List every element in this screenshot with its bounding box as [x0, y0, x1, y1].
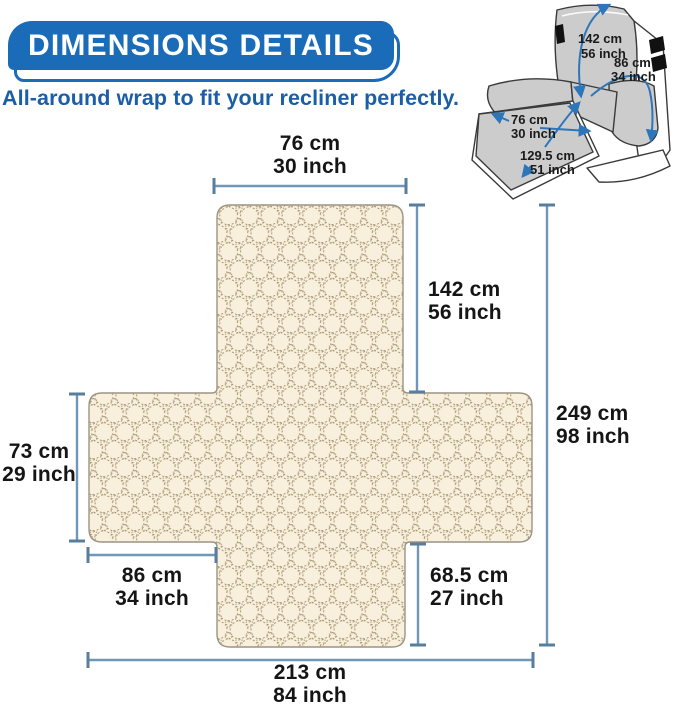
banner-title: DIMENSIONS DETAILS — [28, 29, 374, 63]
dim-total-length-cm: 249 cm — [556, 403, 630, 426]
dim-top-width-inch: 30 inch — [230, 156, 390, 179]
dim-total-length-inch: 98 inch — [556, 426, 630, 449]
chair-base — [587, 150, 670, 182]
recliner-illustration: 142 cm 56 inch 86 cm 34 inch 76 cm 30 in… — [467, 0, 679, 200]
dim-label-top-width: 76 cm 30 inch — [230, 133, 390, 178]
tagline: All-around wrap to fit your recliner per… — [2, 86, 522, 111]
dim-front-height-inch: 27 inch — [430, 588, 508, 611]
dimensions-details-banner: DIMENSIONS DETAILS — [8, 21, 394, 70]
product-dimensions-infographic: { "banner": { "title": "DIMENSIONS DETAI… — [0, 0, 679, 702]
recliner-dim-seat-length-inch: 51 inch — [530, 162, 575, 177]
dim-side-width-cm: 86 cm — [90, 565, 214, 588]
dim-label-side-panel-width: 86 cm 34 inch — [90, 565, 214, 610]
dim-side-height-inch: 29 inch — [0, 464, 80, 487]
dim-total-width-inch: 84 inch — [230, 685, 390, 707]
dim-label-back-panel-height: 142 cm 56 inch — [428, 279, 502, 324]
dim-label-front-panel-height: 68.5 cm 27 inch — [430, 565, 508, 610]
recliner-dim-arm-wrap-cm: 86 cm — [614, 55, 651, 70]
recliner-dim-footrest-width-inch: 30 inch — [511, 126, 556, 141]
dim-back-panel-inch: 56 inch — [428, 302, 502, 325]
dim-label-side-panel-height: 73 cm 29 inch — [0, 441, 80, 486]
recliner-dim-back-height-cm: 142 cm — [578, 31, 622, 46]
dim-label-total-length: 249 cm 98 inch — [556, 403, 630, 448]
dim-label-total-width: 213 cm 84 inch — [230, 662, 390, 707]
dim-side-height-cm: 73 cm — [0, 441, 80, 464]
dim-side-width-inch: 34 inch — [90, 588, 214, 611]
recliner-dim-arm-wrap-inch: 34 inch — [611, 69, 656, 84]
dim-back-panel-cm: 142 cm — [428, 279, 502, 302]
dim-total-width-cm: 213 cm — [230, 662, 390, 685]
recliner-dim-seat-length-cm: 129.5 cm — [520, 148, 575, 163]
dim-top-width-cm: 76 cm — [230, 133, 390, 156]
recliner-dim-footrest-width-cm: 76 cm — [511, 112, 548, 127]
dim-front-height-cm: 68.5 cm — [430, 565, 508, 588]
